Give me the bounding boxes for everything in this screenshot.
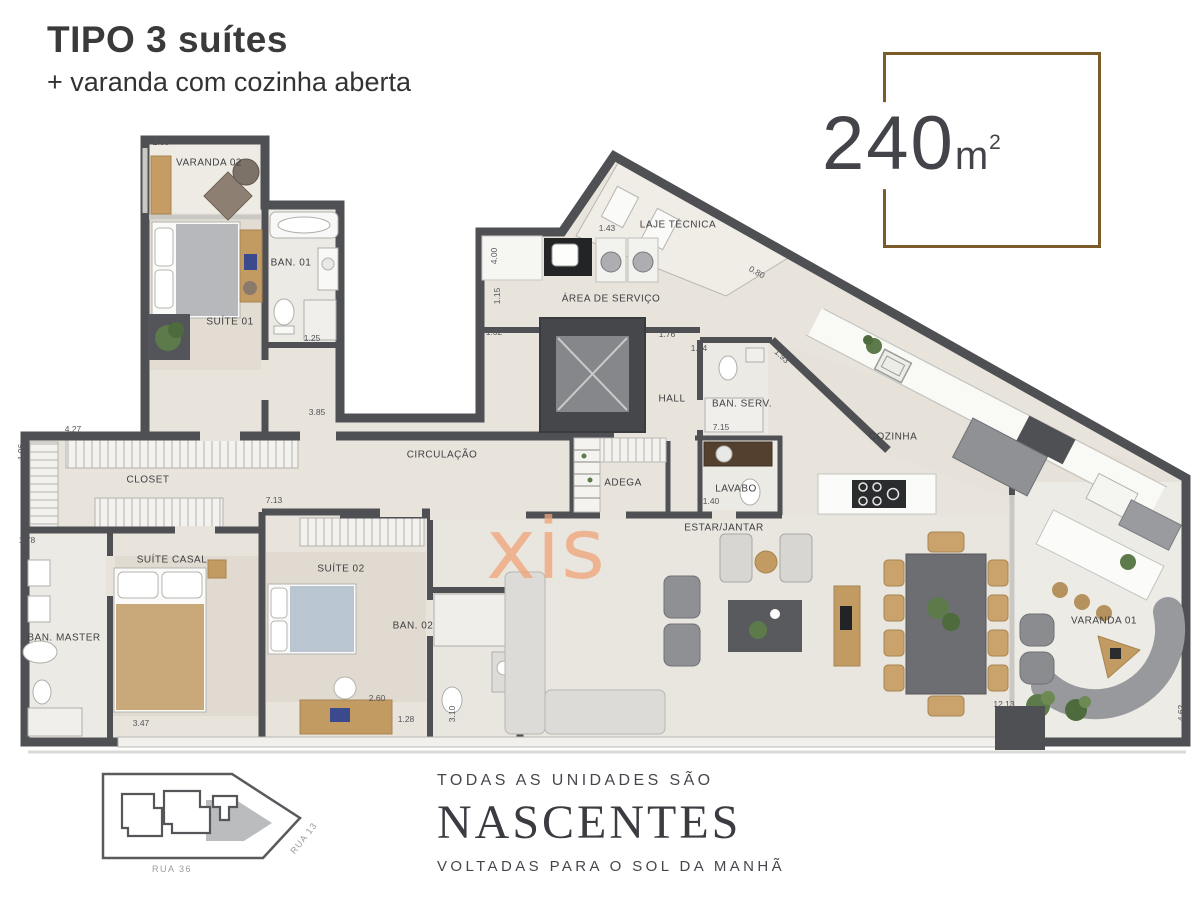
floor-plan-graphic: RUA 36 RUA 13 <box>0 0 1200 900</box>
footer: TODAS AS UNIDADES SÃO NASCENTES VOLTADAS… <box>437 772 785 875</box>
footer-line1: TODAS AS UNIDADES SÃO <box>437 772 785 790</box>
page: TIPO 3 suítes + varanda com cozinha aber… <box>0 0 1200 900</box>
footer-line2: VOLTADAS PARA O SOL DA MANHÃ <box>437 858 785 875</box>
elevator <box>540 318 645 432</box>
laundry-fixtures <box>482 236 658 282</box>
brand-nascentes: NASCENTES <box>437 795 785 850</box>
column <box>995 706 1045 750</box>
street-label-rua36: RUA 36 <box>152 864 192 874</box>
cooktop-island <box>818 474 936 514</box>
site-plan: RUA 36 RUA 13 <box>103 774 319 874</box>
xis-watermark: xis <box>486 500 606 598</box>
